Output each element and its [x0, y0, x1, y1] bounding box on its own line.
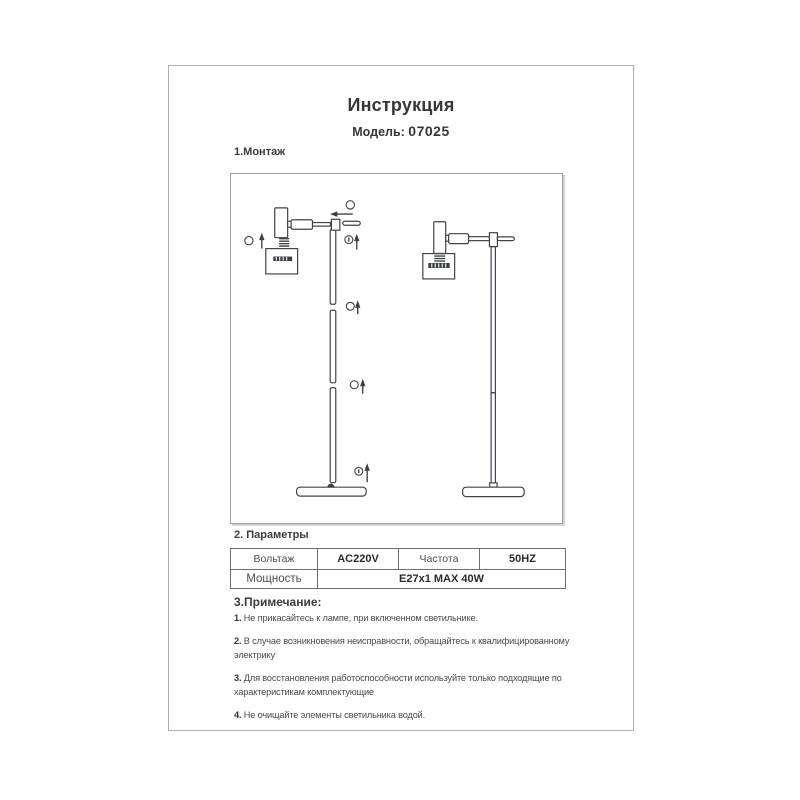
- shade-louver: [428, 263, 449, 268]
- callout-circle: [245, 236, 253, 244]
- page-title: Инструкция: [169, 95, 633, 116]
- callout-circle: [350, 381, 358, 389]
- pole: [491, 247, 495, 484]
- lamp-shade: [266, 249, 298, 274]
- param-voltage-value: AC220V: [318, 549, 399, 570]
- callout-head: [245, 233, 265, 249]
- note-item: 3. Для восстановления работоспособности …: [234, 671, 579, 699]
- arm-rod-end: [497, 237, 514, 241]
- screenshot-canvas: { "page": { "title": "Инструкция", "mode…: [0, 0, 800, 800]
- note-text: Не очищайте элементы светильника водой.: [244, 710, 425, 720]
- arm-rod: [469, 237, 490, 241]
- lamp-head-cylinder: [275, 208, 288, 238]
- model-line: Модель: 07025: [169, 123, 633, 139]
- model-label: Модель:: [352, 125, 405, 139]
- note-item: 4. Не очищайте элементы светильника водо…: [234, 708, 579, 722]
- lamp-head-cylinder: [434, 222, 446, 254]
- section-params-label: 2. Параметры: [234, 529, 309, 541]
- instruction-page: Инструкция Модель: 07025 1.Монтаж: [168, 65, 634, 731]
- model-number: 07025: [408, 123, 449, 139]
- assembly-diagram-svg: [231, 174, 562, 523]
- parameters-table: Вольтаж AC220V Частота 50HZ Мощность E27…: [230, 548, 566, 589]
- pole-segment-3: [330, 388, 336, 483]
- param-frequency-value: 50HZ: [480, 549, 566, 570]
- note-item: 2. В случае возникновения неисправности,…: [234, 634, 579, 662]
- callout-circle: [346, 201, 354, 209]
- section-notes-label: 3.Примечание:: [234, 595, 322, 609]
- table-row: Вольтаж AC220V Частота 50HZ: [231, 549, 566, 570]
- note-text: Не прикасайтесь к лампе, при включенном …: [244, 613, 478, 623]
- callout-joint-3: [350, 379, 365, 394]
- callout-rod-insert: [330, 201, 355, 217]
- arm-rod: [313, 223, 331, 227]
- note-text: В случае возникновения неисправности, об…: [234, 636, 569, 660]
- section-montage-label: 1.Монтаж: [234, 146, 285, 158]
- callout-joint-2: [346, 300, 360, 314]
- lamp-base: [463, 487, 525, 496]
- exploded-lamp-figure: [245, 201, 370, 496]
- assembled-lamp-figure: [423, 222, 524, 497]
- note-item: 1. Не прикасайтесь к лампе, при включенн…: [234, 611, 579, 625]
- shade-louver: [273, 257, 292, 261]
- assembly-diagram: [230, 173, 563, 524]
- callout-joint-1: [345, 234, 360, 250]
- pole-knuckle: [489, 233, 497, 247]
- note-number: 4.: [234, 710, 241, 720]
- note-number: 2.: [234, 636, 241, 646]
- arm-connector: [449, 234, 469, 244]
- table-row: Мощность E27x1 MAX 40W: [231, 570, 566, 589]
- param-power-label: Мощность: [231, 570, 318, 589]
- arm-connector: [291, 220, 312, 229]
- thread-screw: [279, 239, 289, 246]
- pole-segment-1: [330, 229, 336, 304]
- note-text: Для восстановления работоспособности исп…: [234, 673, 562, 697]
- detached-rod-piece: [343, 221, 360, 225]
- note-number: 3.: [234, 673, 241, 683]
- callout-base-joint: [355, 463, 370, 482]
- param-power-value: E27x1 MAX 40W: [318, 570, 566, 589]
- notes-list: 1. Не прикасайтесь к лампе, при включенн…: [234, 611, 579, 731]
- lamp-base: [297, 487, 367, 496]
- note-number: 1.: [234, 613, 241, 623]
- pole-knuckle: [331, 219, 339, 230]
- param-frequency-label: Частота: [399, 549, 480, 570]
- param-voltage-label: Вольтаж: [231, 549, 318, 570]
- callout-circle: [346, 302, 354, 310]
- pole-segment-2: [330, 310, 336, 383]
- base-nub: [490, 483, 497, 487]
